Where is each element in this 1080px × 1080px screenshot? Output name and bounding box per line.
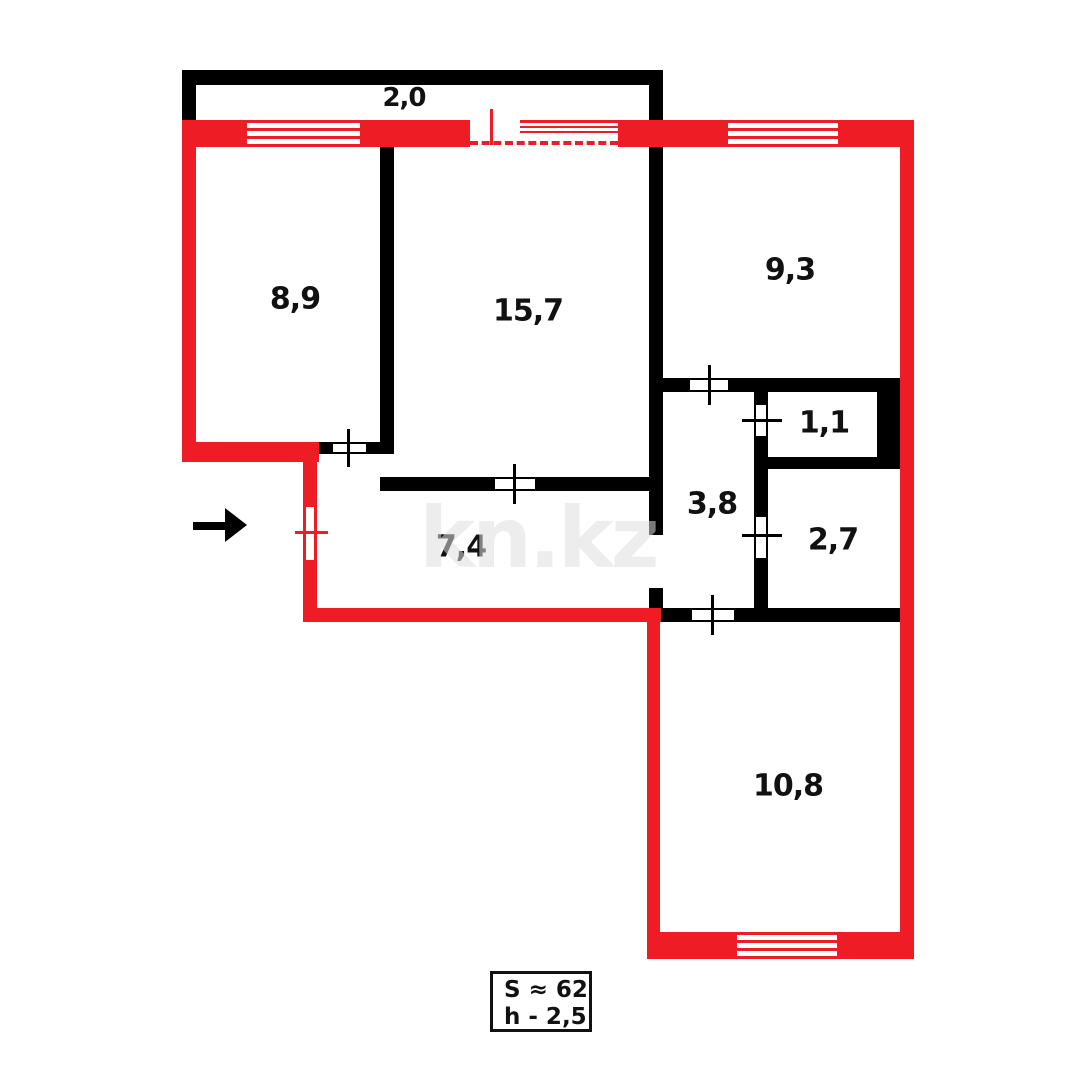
room-area-label-balcony: 2,0	[382, 83, 425, 113]
window-line	[247, 128, 360, 131]
room-area-label-15-7: 15,7	[493, 294, 563, 329]
window-top-left	[247, 120, 360, 147]
exterior-wall-right	[900, 120, 914, 959]
window-line	[728, 120, 838, 123]
room-area-label-3-8: 3,8	[687, 487, 737, 522]
balcony-wall-left	[182, 70, 196, 120]
room-area-label-8-9: 8,9	[270, 282, 320, 317]
vent-shaft	[877, 378, 900, 469]
exterior-wall-room108-left	[647, 608, 660, 959]
room-area-label-9-3: 9,3	[765, 253, 815, 288]
window-line	[247, 136, 360, 139]
entrance-arrow-shaft	[193, 522, 227, 530]
exterior-wall-under-room89	[182, 442, 319, 462]
window-line	[520, 120, 618, 123]
window-top-right	[728, 120, 838, 147]
entrance-arrow	[193, 508, 247, 542]
door-entrance-tick	[295, 531, 328, 534]
window-line	[737, 940, 837, 943]
door-room157-tick	[513, 464, 516, 504]
door-room93-tick	[708, 365, 711, 405]
door-room108-tick	[711, 595, 714, 635]
window-line	[728, 128, 838, 131]
window-line	[728, 144, 838, 147]
door-bathroom	[754, 517, 768, 558]
balcony-wall-right	[649, 70, 663, 120]
door-bathroom-tick	[742, 534, 782, 537]
exterior-wall-hallway-bottom	[303, 608, 661, 622]
window-line	[520, 126, 618, 128]
room-area-label-1-1: 1,1	[799, 406, 849, 441]
total-area: S ≈ 62	[504, 977, 589, 1004]
balcony-door-tick	[490, 109, 493, 145]
floor-plan: 2,0 8,9 15,7 9,3 1,1 3,8 2,7 7,4 10,8 kn…	[0, 0, 1080, 1080]
room-area-label-10-8: 10,8	[753, 769, 823, 804]
window-line	[728, 136, 838, 139]
ceiling-height: h - 2,5	[504, 1004, 589, 1031]
window-line	[737, 932, 837, 935]
window-line	[520, 131, 618, 133]
door-closet-tick	[742, 419, 782, 422]
window-bottom	[737, 932, 837, 959]
window-line	[737, 956, 837, 959]
exterior-wall-left	[182, 120, 196, 462]
entrance-arrow-head	[225, 508, 247, 542]
door-room89-tick	[347, 429, 350, 467]
window-line	[247, 120, 360, 123]
window-line	[737, 948, 837, 951]
info-box: S ≈ 62 h - 2,5	[490, 971, 592, 1032]
wall-room89-room157	[380, 147, 394, 454]
room-area-label-2-7: 2,7	[808, 523, 858, 558]
room-area-label-7-4: 7,4	[436, 530, 486, 565]
window-line	[247, 144, 360, 147]
wall-divider-center	[649, 147, 663, 535]
